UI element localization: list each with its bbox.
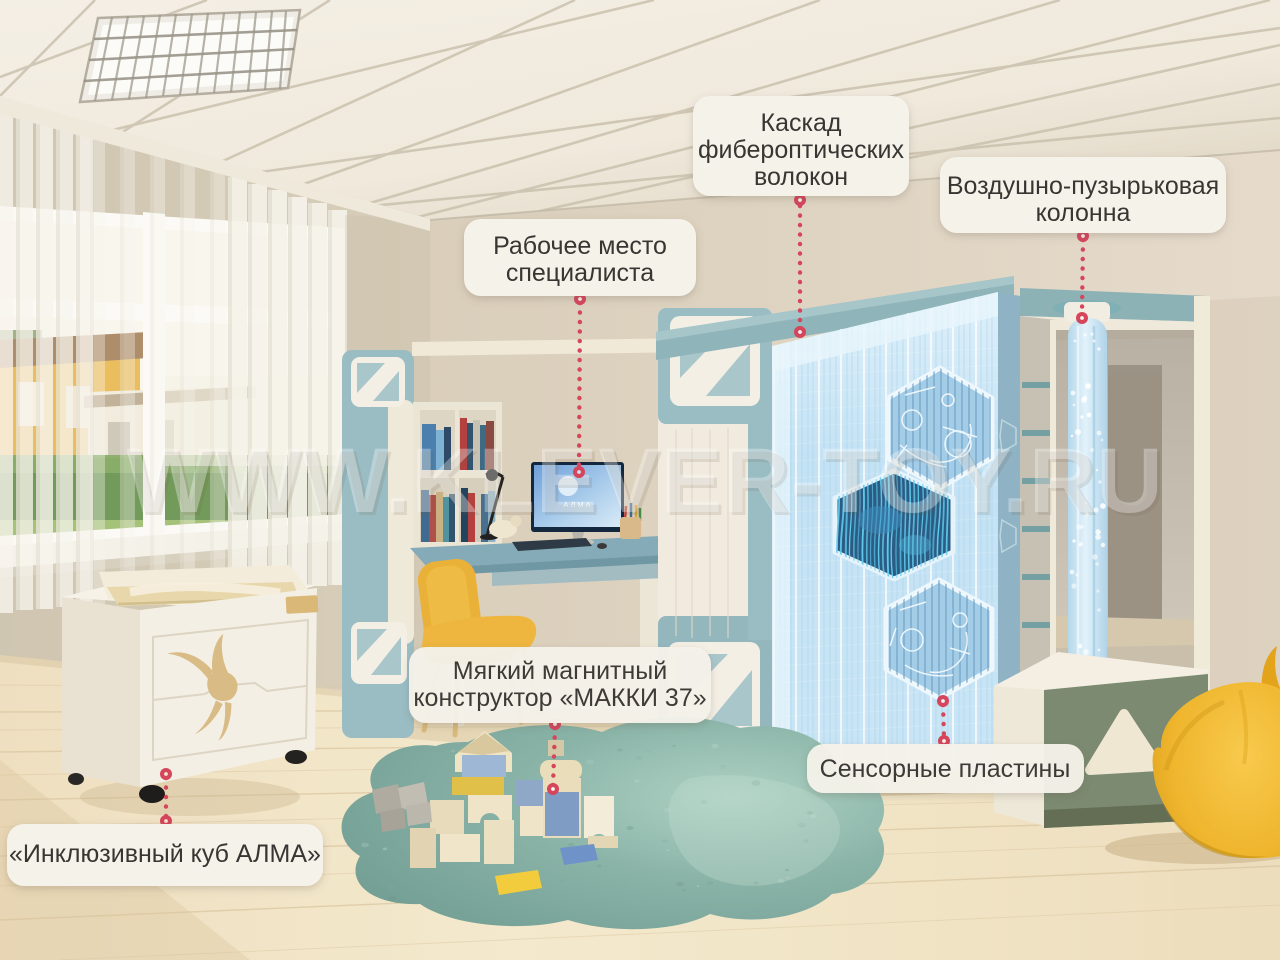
svg-text:«Инклюзивный куб АЛМА»: «Инклюзивный куб АЛМА»	[9, 840, 321, 868]
svg-text:колонна: колонна	[1036, 199, 1131, 227]
svg-text:Рабочее место: Рабочее место	[493, 232, 667, 260]
svg-text:Сенсорные пластины: Сенсорные пластины	[820, 755, 1071, 783]
svg-text:специалиста: специалиста	[506, 259, 654, 287]
svg-text:Мягкий магнитный: Мягкий магнитный	[453, 657, 667, 685]
svg-text:WWW.KLEVER-TOY.RU: WWW.KLEVER-TOY.RU	[126, 430, 1164, 532]
svg-text:фибероптических: фибероптических	[698, 136, 905, 164]
svg-text:Воздушно-пузырьковая: Воздушно-пузырьковая	[947, 172, 1219, 200]
svg-text:конструктор «МАККИ 37»: конструктор «МАККИ 37»	[413, 684, 706, 712]
svg-text:волокон: волокон	[754, 163, 848, 191]
svg-text:Каскад: Каскад	[761, 109, 842, 137]
